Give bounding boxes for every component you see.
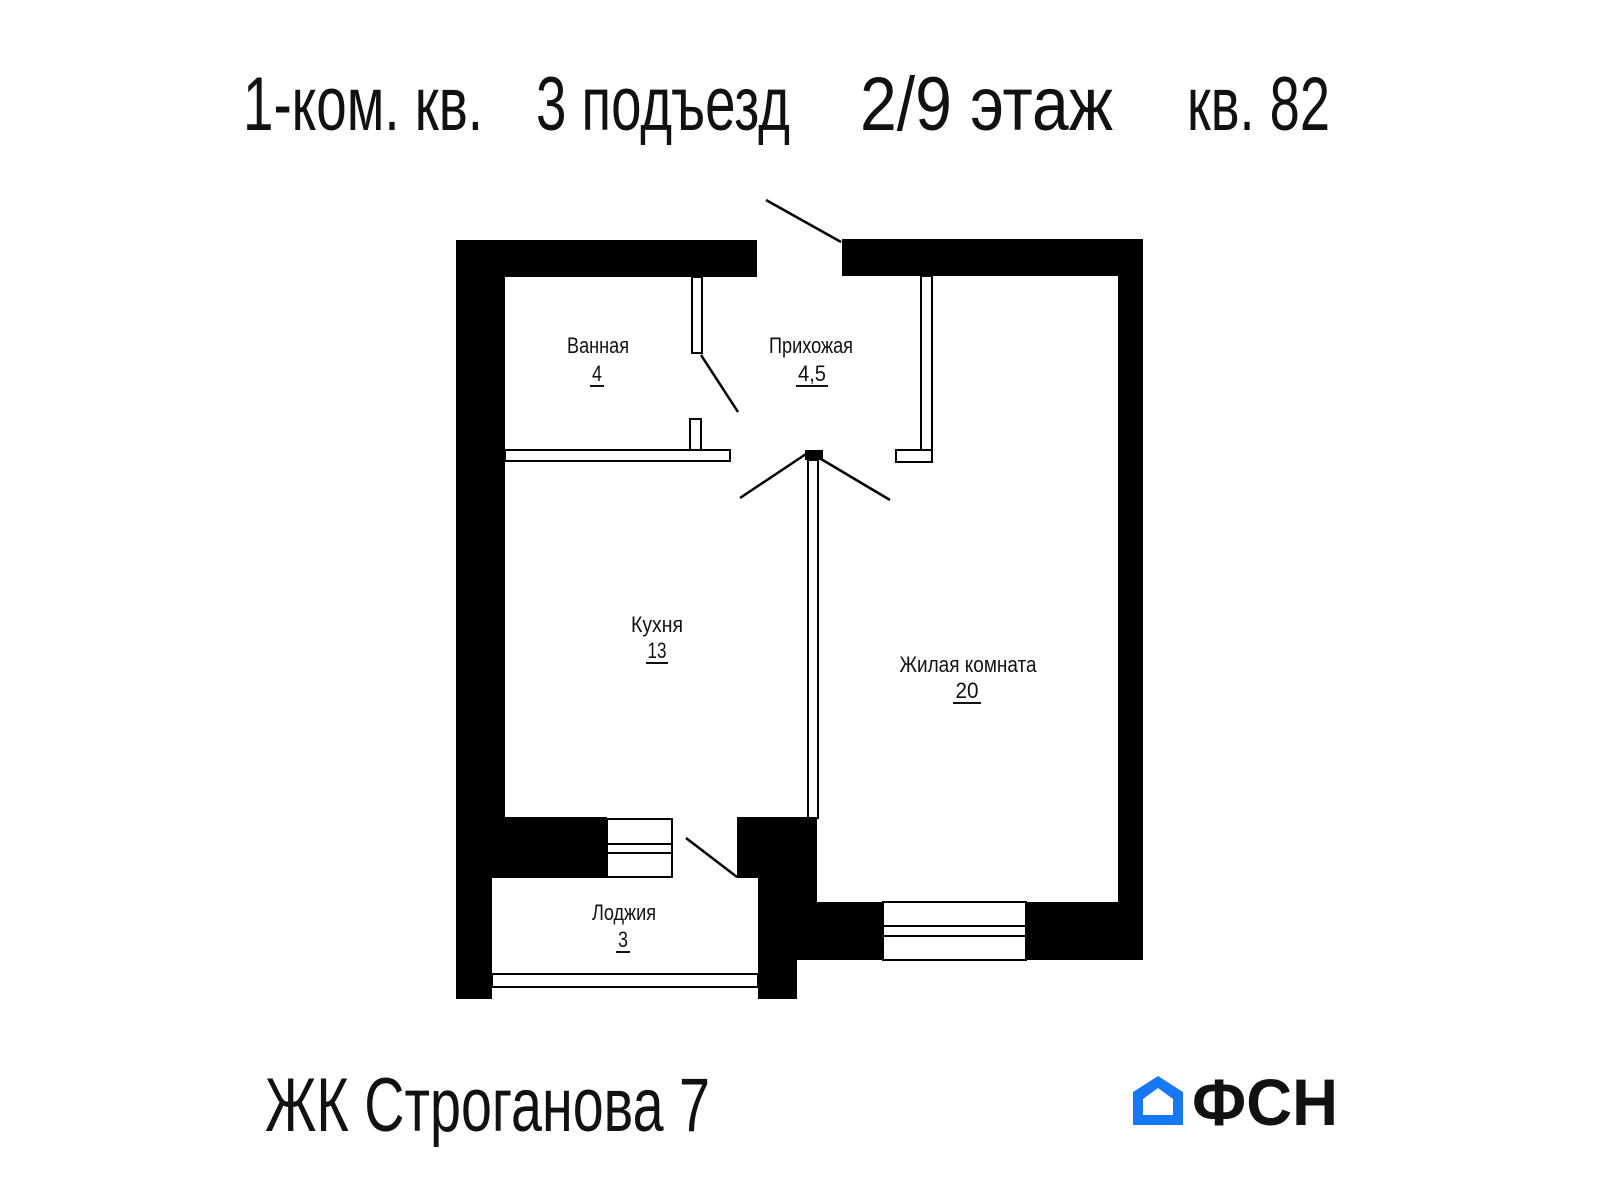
wall-kitchen-bottom-left [456, 817, 607, 878]
door-swing-bathroom [701, 355, 738, 412]
partition-bathroom-bottom [505, 450, 730, 461]
room-area-bathroom: 4 [592, 361, 602, 386]
room-area-kitchen: 13 [648, 638, 667, 663]
complex-name: ЖК Строганова 7 [265, 1063, 710, 1148]
door-swing-kitchen [740, 454, 806, 498]
room-area-loggia: 3 [618, 927, 628, 952]
room-area-hallway: 4,5 [798, 361, 826, 386]
wall-top-left [456, 240, 757, 277]
wall-bottom-right-of-window [1026, 902, 1143, 960]
floor-plan-page: 1-ком. кв. 3 подъезд 2/9 этаж кв. 82 [0, 0, 1600, 1200]
window-balcony-block [607, 819, 672, 877]
room-label-loggia: Лоджия [592, 900, 656, 925]
room-label-bathroom: Ванная [567, 333, 629, 358]
door-swing-entrance [766, 200, 841, 242]
partition-bathroom-stub [690, 419, 701, 450]
title-entrance: 3 подъезд [536, 62, 790, 147]
partition-bathroom-top [692, 277, 702, 353]
partition-kitchen-living [808, 460, 818, 818]
wall-bottom-left-of-window [817, 902, 883, 960]
room-label-living-room: Жилая комната [900, 652, 1038, 677]
logo-text: ФСН [1192, 1065, 1338, 1139]
loggia-railing [492, 974, 758, 987]
room-label-hallway: Прихожая [769, 333, 853, 358]
door-swing-balcony [686, 838, 737, 877]
door-swings [686, 200, 890, 877]
door-swing-living-room [821, 459, 890, 500]
plan-title: 1-ком. кв. 3 подъезд 2/9 этаж кв. 82 [243, 62, 1330, 147]
room-area-living-room: 20 [956, 678, 979, 703]
wall-loggia-left [456, 878, 492, 999]
house-icon [1133, 1076, 1183, 1125]
wall-right [1118, 239, 1143, 960]
window-living-room [883, 902, 1026, 960]
title-apartment-type: 1-ком. кв. [243, 62, 483, 147]
partition-center-post [805, 450, 823, 460]
floor-plan-svg: 1-ком. кв. 3 подъезд 2/9 этаж кв. 82 [0, 0, 1600, 1200]
wall-top-right [842, 239, 1143, 276]
room-label-kitchen: Кухня [631, 612, 683, 637]
title-apartment-number: кв. 82 [1187, 62, 1330, 147]
partition-hallway-right [921, 276, 932, 452]
wall-left [456, 240, 505, 878]
partition-hallway-foot [896, 450, 932, 462]
title-floor: 2/9 этаж [860, 62, 1113, 147]
wall-corner-post [797, 817, 817, 960]
wall-loggia-right [758, 878, 797, 999]
footer: ЖК Строганова 7 ФСН [265, 1063, 1338, 1148]
fsn-logo: ФСН [1133, 1065, 1338, 1139]
